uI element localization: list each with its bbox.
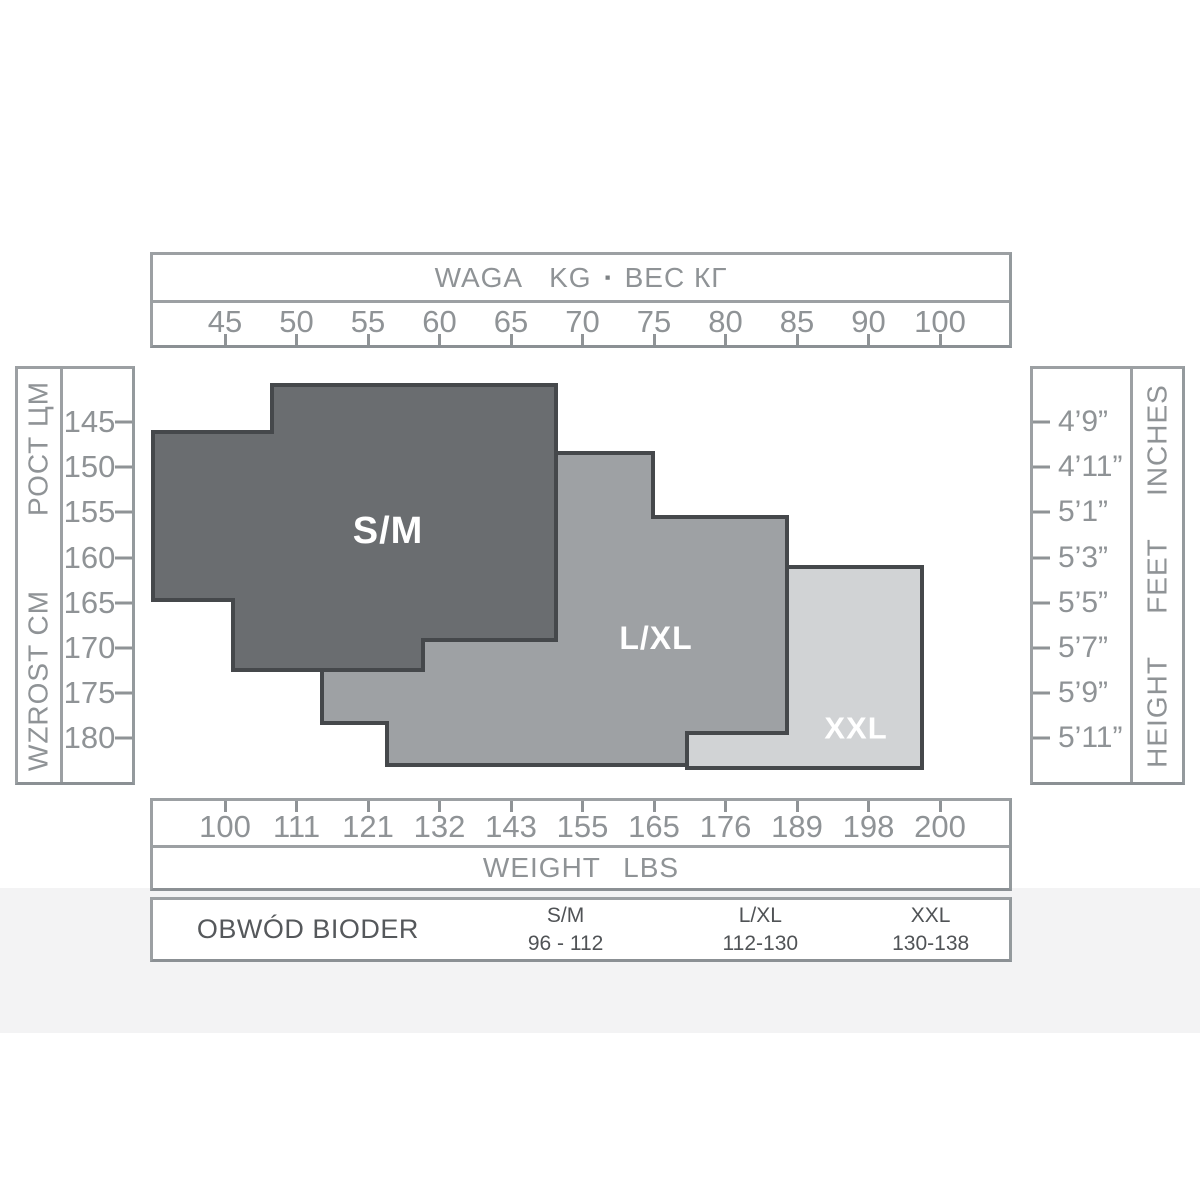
table-row-label: OBWÓD BIODER (153, 914, 463, 945)
axis-tick-label: 100 (199, 810, 251, 844)
table-column-lxl: L/XL 112-130 (668, 902, 852, 957)
axis-tick-mark (438, 801, 441, 812)
table-size-name: S/M (463, 902, 668, 929)
axis-tick-label: 121 (342, 810, 394, 844)
table-column-xxl: XXL 130-138 (852, 902, 1009, 957)
axis-tick-label: 111 (273, 810, 320, 844)
table-size-range: 112-130 (668, 930, 852, 957)
region-label-xxl: XXL (824, 711, 887, 746)
axis-tick-mark (796, 801, 799, 812)
region-label-sm: S/M (353, 510, 424, 552)
axis-tick-mark (867, 801, 870, 812)
axis-tick-mark (581, 801, 584, 812)
axis-tick-mark (295, 801, 298, 812)
axis-tick-mark (367, 801, 370, 812)
bottom-axis-title: WEIGHT LBS (153, 848, 1009, 888)
axis-tick-mark (653, 801, 656, 812)
axis-tick-label: 165 (628, 810, 680, 844)
table-column-sm: S/M 96 - 112 (463, 902, 668, 957)
bottom-axis-scale: 100111121132143155165176189198200 (153, 801, 1009, 848)
axis-tick-label: 189 (771, 810, 823, 844)
axis-tick-label: 132 (414, 810, 466, 844)
axis-tick-label: 176 (700, 810, 752, 844)
axis-tick-mark (224, 801, 227, 812)
axis-tick-label: 155 (557, 810, 609, 844)
table-size-name: XXL (852, 902, 1009, 929)
table-size-range: 130-138 (852, 930, 1009, 957)
axis-tick-mark (724, 801, 727, 812)
axis-tick-mark (510, 801, 513, 812)
axis-tick-label: 143 (485, 810, 537, 844)
axis-tick-mark (939, 801, 942, 812)
axis-tick-label: 198 (843, 810, 895, 844)
table-size-range: 96 - 112 (463, 930, 668, 957)
axis-tick-label: 200 (914, 810, 966, 844)
region-label-lxl: L/XL (619, 620, 692, 656)
size-chart-figure: WAGA KG ▪ ВЕС КГ 45505560657075808590100… (0, 0, 1200, 1200)
size-table: OBWÓD BIODER S/M 96 - 112 L/XL 112-130 X… (150, 897, 1012, 962)
bottom-axis: 100111121132143155165176189198200 WEIGHT… (150, 798, 1012, 891)
table-size-name: L/XL (668, 902, 852, 929)
size-regions-plot: XXLL/XLS/M (0, 0, 1200, 1200)
